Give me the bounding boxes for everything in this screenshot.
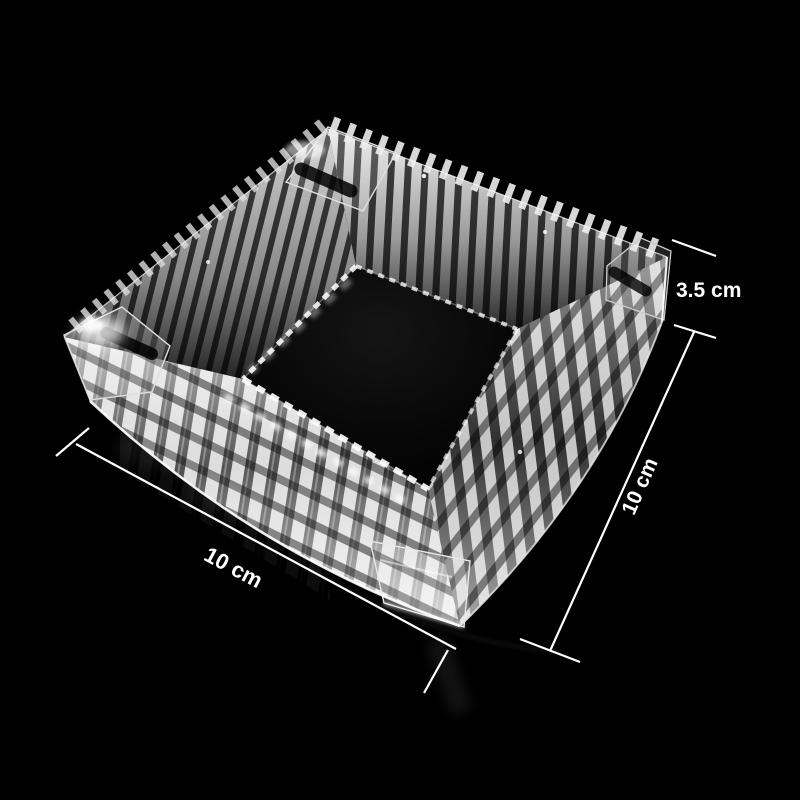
dimension-height-label: 3.5 cm <box>676 279 741 302</box>
product-photo-stage: 3.5 cm 10 cm 10 cm <box>0 0 800 800</box>
ashtray-product-photo: 3.5 cm 10 cm 10 cm <box>0 0 800 800</box>
